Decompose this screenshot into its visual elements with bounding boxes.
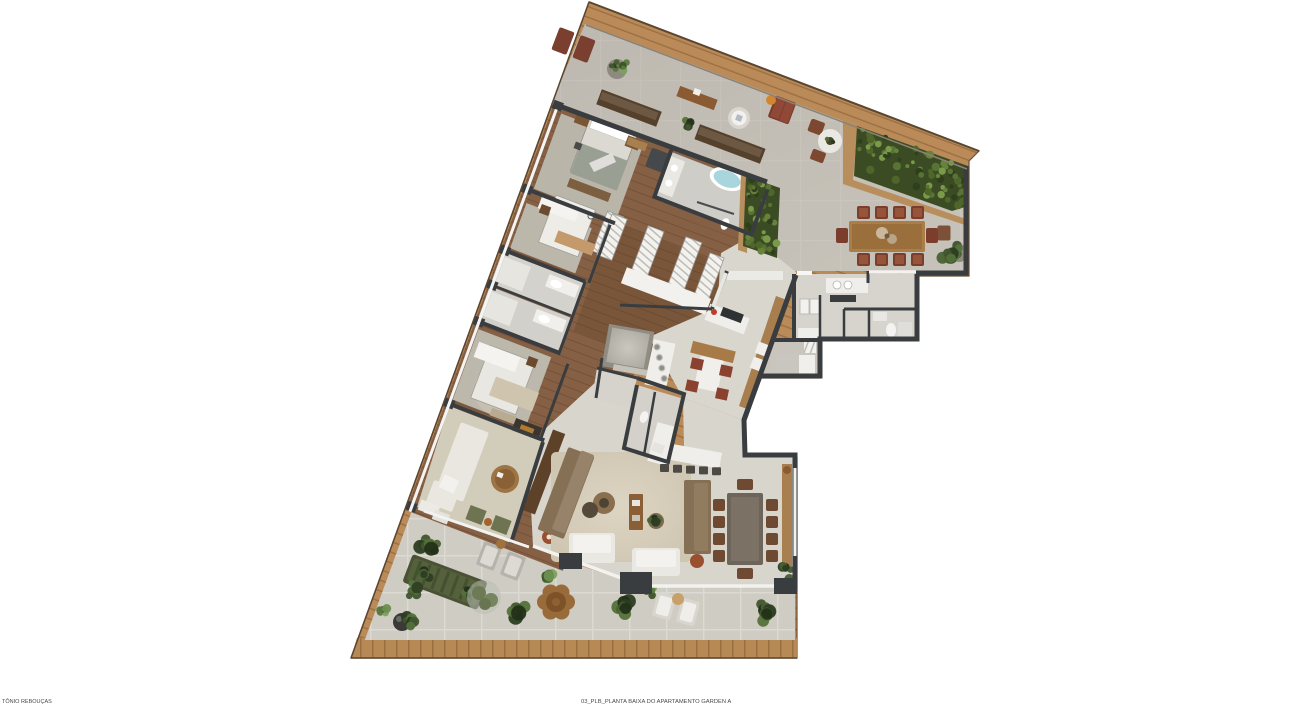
svg-text:TÔNIO REBOUÇAS: TÔNIO REBOUÇAS bbox=[2, 698, 52, 705]
svg-text:03_PLB_PLANTA BAIXA DO APARTAM: 03_PLB_PLANTA BAIXA DO APARTAMENTO GARDE… bbox=[581, 699, 731, 705]
